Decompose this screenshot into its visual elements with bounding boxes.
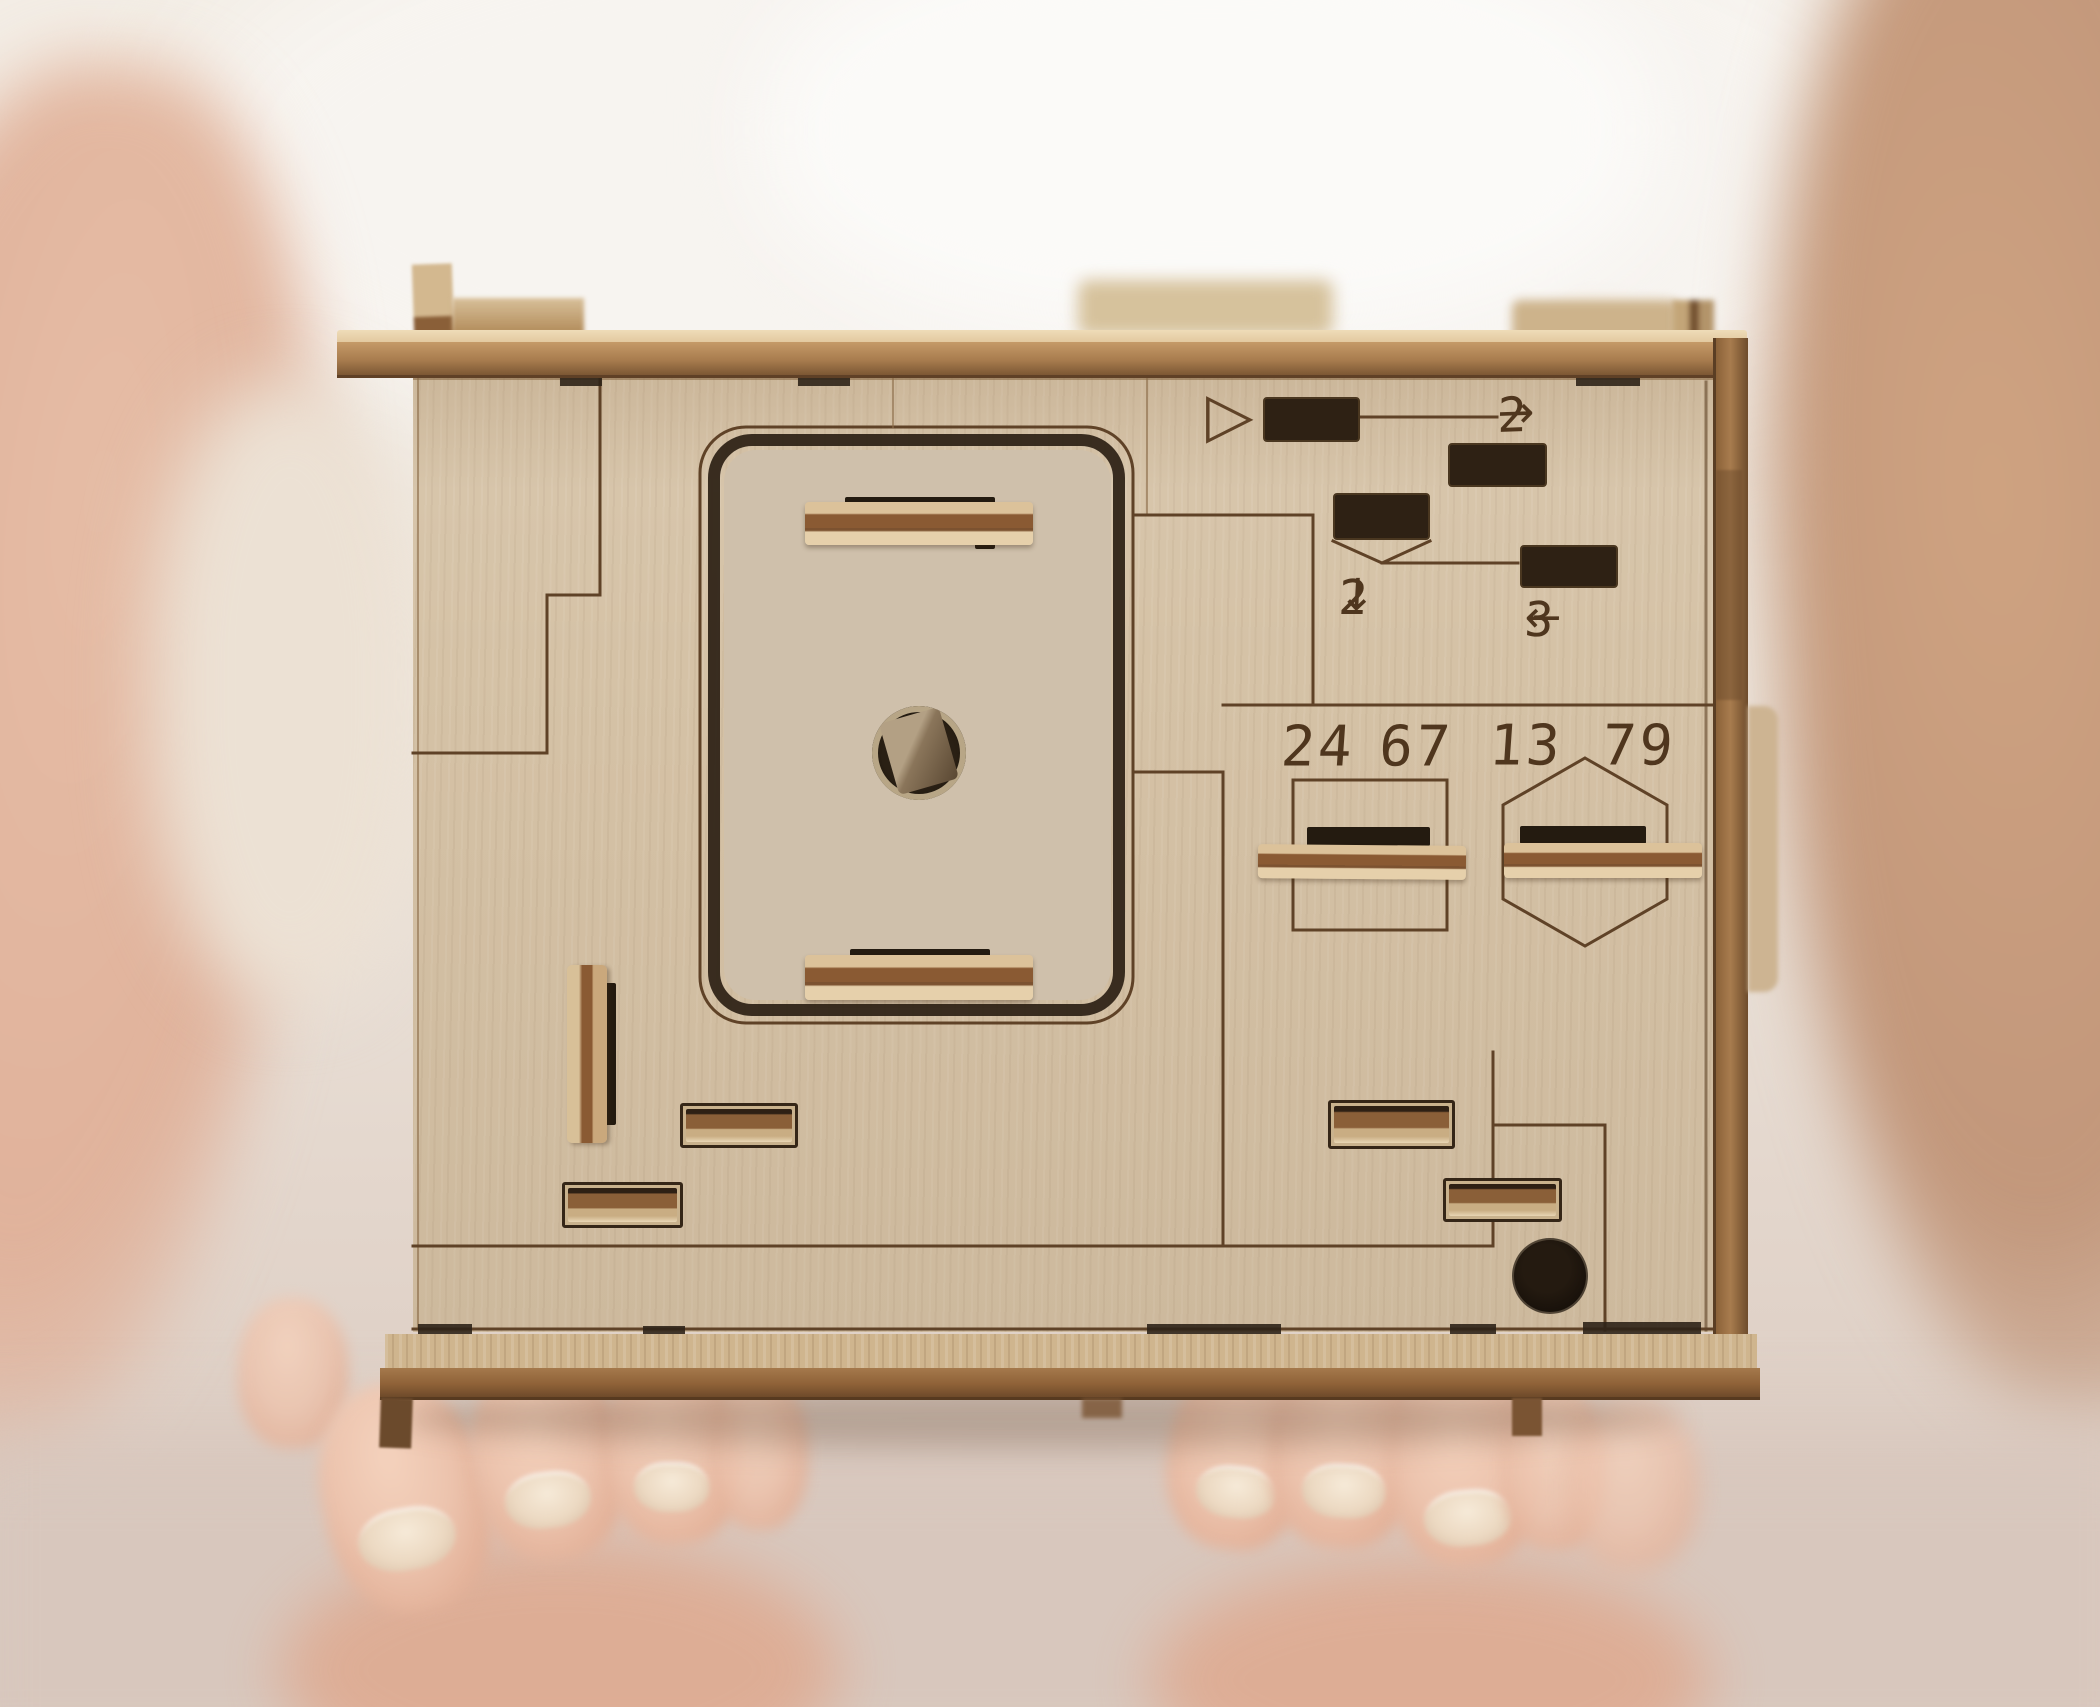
right-rail-recess	[1716, 470, 1742, 700]
door-key-hole	[872, 706, 966, 800]
code-number-13: 13	[1487, 714, 1565, 779]
hexagon-slider-bar	[1504, 843, 1702, 878]
door-bottom-handle	[805, 955, 1033, 1000]
pointer-triangle-icon: ▷	[1206, 384, 1254, 446]
bottom-front-rail	[380, 1368, 1760, 1400]
square-slider-bar	[1258, 844, 1466, 880]
left-finger-3-nail	[634, 1462, 710, 1512]
diagram-slider-slot-4	[1520, 545, 1618, 588]
lid-corner-tab-left	[412, 263, 454, 334]
diagram-slider-slot-3	[1333, 493, 1430, 540]
code-number-24: 24	[1279, 715, 1357, 780]
code-number-79: 79	[1600, 714, 1678, 779]
slider-bar	[1449, 1184, 1556, 1216]
bottom-foot-right	[1512, 1398, 1542, 1436]
diagram-slider-slot-2	[1448, 443, 1547, 487]
bottom-foot-middle	[1082, 1398, 1122, 1418]
square-slider-slot	[1307, 827, 1430, 846]
bottom-panel-edge	[385, 1334, 1757, 1370]
hexagon-slider-slot	[1520, 826, 1646, 844]
slider-bar	[568, 1188, 677, 1222]
left-slider-slot-upper	[680, 1103, 798, 1148]
lid-step-left	[452, 298, 584, 334]
background-gap-left	[150, 380, 430, 1000]
right-side-tab	[1748, 706, 1778, 992]
round-hole	[1512, 1238, 1588, 1314]
vertical-slider-tab	[567, 965, 607, 1143]
code-number-67: 67	[1377, 715, 1455, 780]
right-slider-slot-upper	[1328, 1100, 1455, 1149]
right-slider-slot-lower	[1443, 1178, 1562, 1222]
slider-bar	[1334, 1106, 1449, 1143]
lid-back-edge-blur	[1078, 280, 1333, 336]
key-shaft	[879, 707, 959, 795]
lid-front-rail	[337, 342, 1747, 378]
door-top-handle	[805, 502, 1033, 545]
bottom-foot-left	[379, 1397, 413, 1448]
slider-bar	[686, 1109, 792, 1142]
left-slider-slot-lower	[562, 1182, 683, 1228]
photo-wooden-puzzle-box: ▷ 2→ 2↓ 3← 24 67 13 79	[0, 0, 2100, 1707]
diagram-slider-slot-1	[1263, 397, 1360, 442]
